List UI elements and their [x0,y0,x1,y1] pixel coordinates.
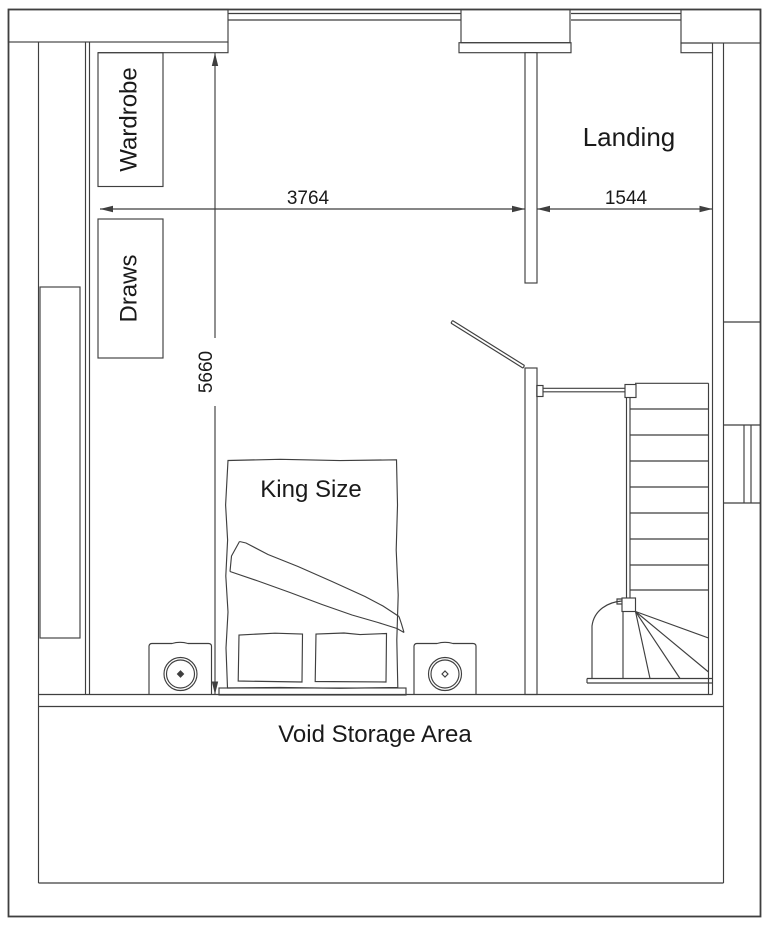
draws-label: Draws [116,254,143,322]
dimension-room-depth: 5660 [195,53,219,695]
dim-arrow-right [512,206,525,212]
bedside-table-right [414,642,476,694]
landing-label: Landing [583,122,676,152]
pillow-left [238,633,302,682]
blanket-fold [230,542,404,633]
dim-3764-label: 3764 [287,188,330,209]
wardrobe-label: Wardrobe [116,67,143,171]
wall-block-top-right [681,10,761,44]
staircase [537,383,713,694]
door-leaf [451,321,525,369]
partition-wall-upper [525,53,537,283]
wardrobe-unit: Wardrobe [98,53,163,187]
floor-plan-drawing: Wardrobe Draws King Size [0,0,768,926]
void-storage-label: Void Storage Area [278,721,472,748]
dimension-bedroom-width: 3764 [100,188,525,212]
rail-wall-bracket [537,386,543,397]
winder-steps [587,598,713,683]
wall-block-top-left [9,10,229,43]
dim-arrow-left [537,206,550,212]
lamp-icon [429,658,462,691]
dim-arrow-right [700,206,713,212]
dim-5660-label: 5660 [196,351,217,393]
handrail [537,385,636,398]
newel-post-top [625,385,636,398]
dim-arrow-left [100,206,113,212]
wall-block-top-middle [461,10,570,43]
dim-arrow-down [212,682,218,695]
draws-unit: Draws [98,219,163,358]
partition-wall-lower [525,368,537,695]
left-wall-window [40,287,80,638]
bedside-table-left [149,642,212,694]
king-size-label: King Size [260,476,361,503]
floor-plan-page: Wardrobe Draws King Size [0,0,768,926]
dimension-landing-width: 1544 [537,188,713,212]
pillow-right [315,633,386,682]
king-size-bed: King Size [219,459,406,695]
dim-1544-label: 1544 [605,188,648,209]
newel-post-bottom [622,598,636,612]
dim-arrow-up [212,53,218,66]
